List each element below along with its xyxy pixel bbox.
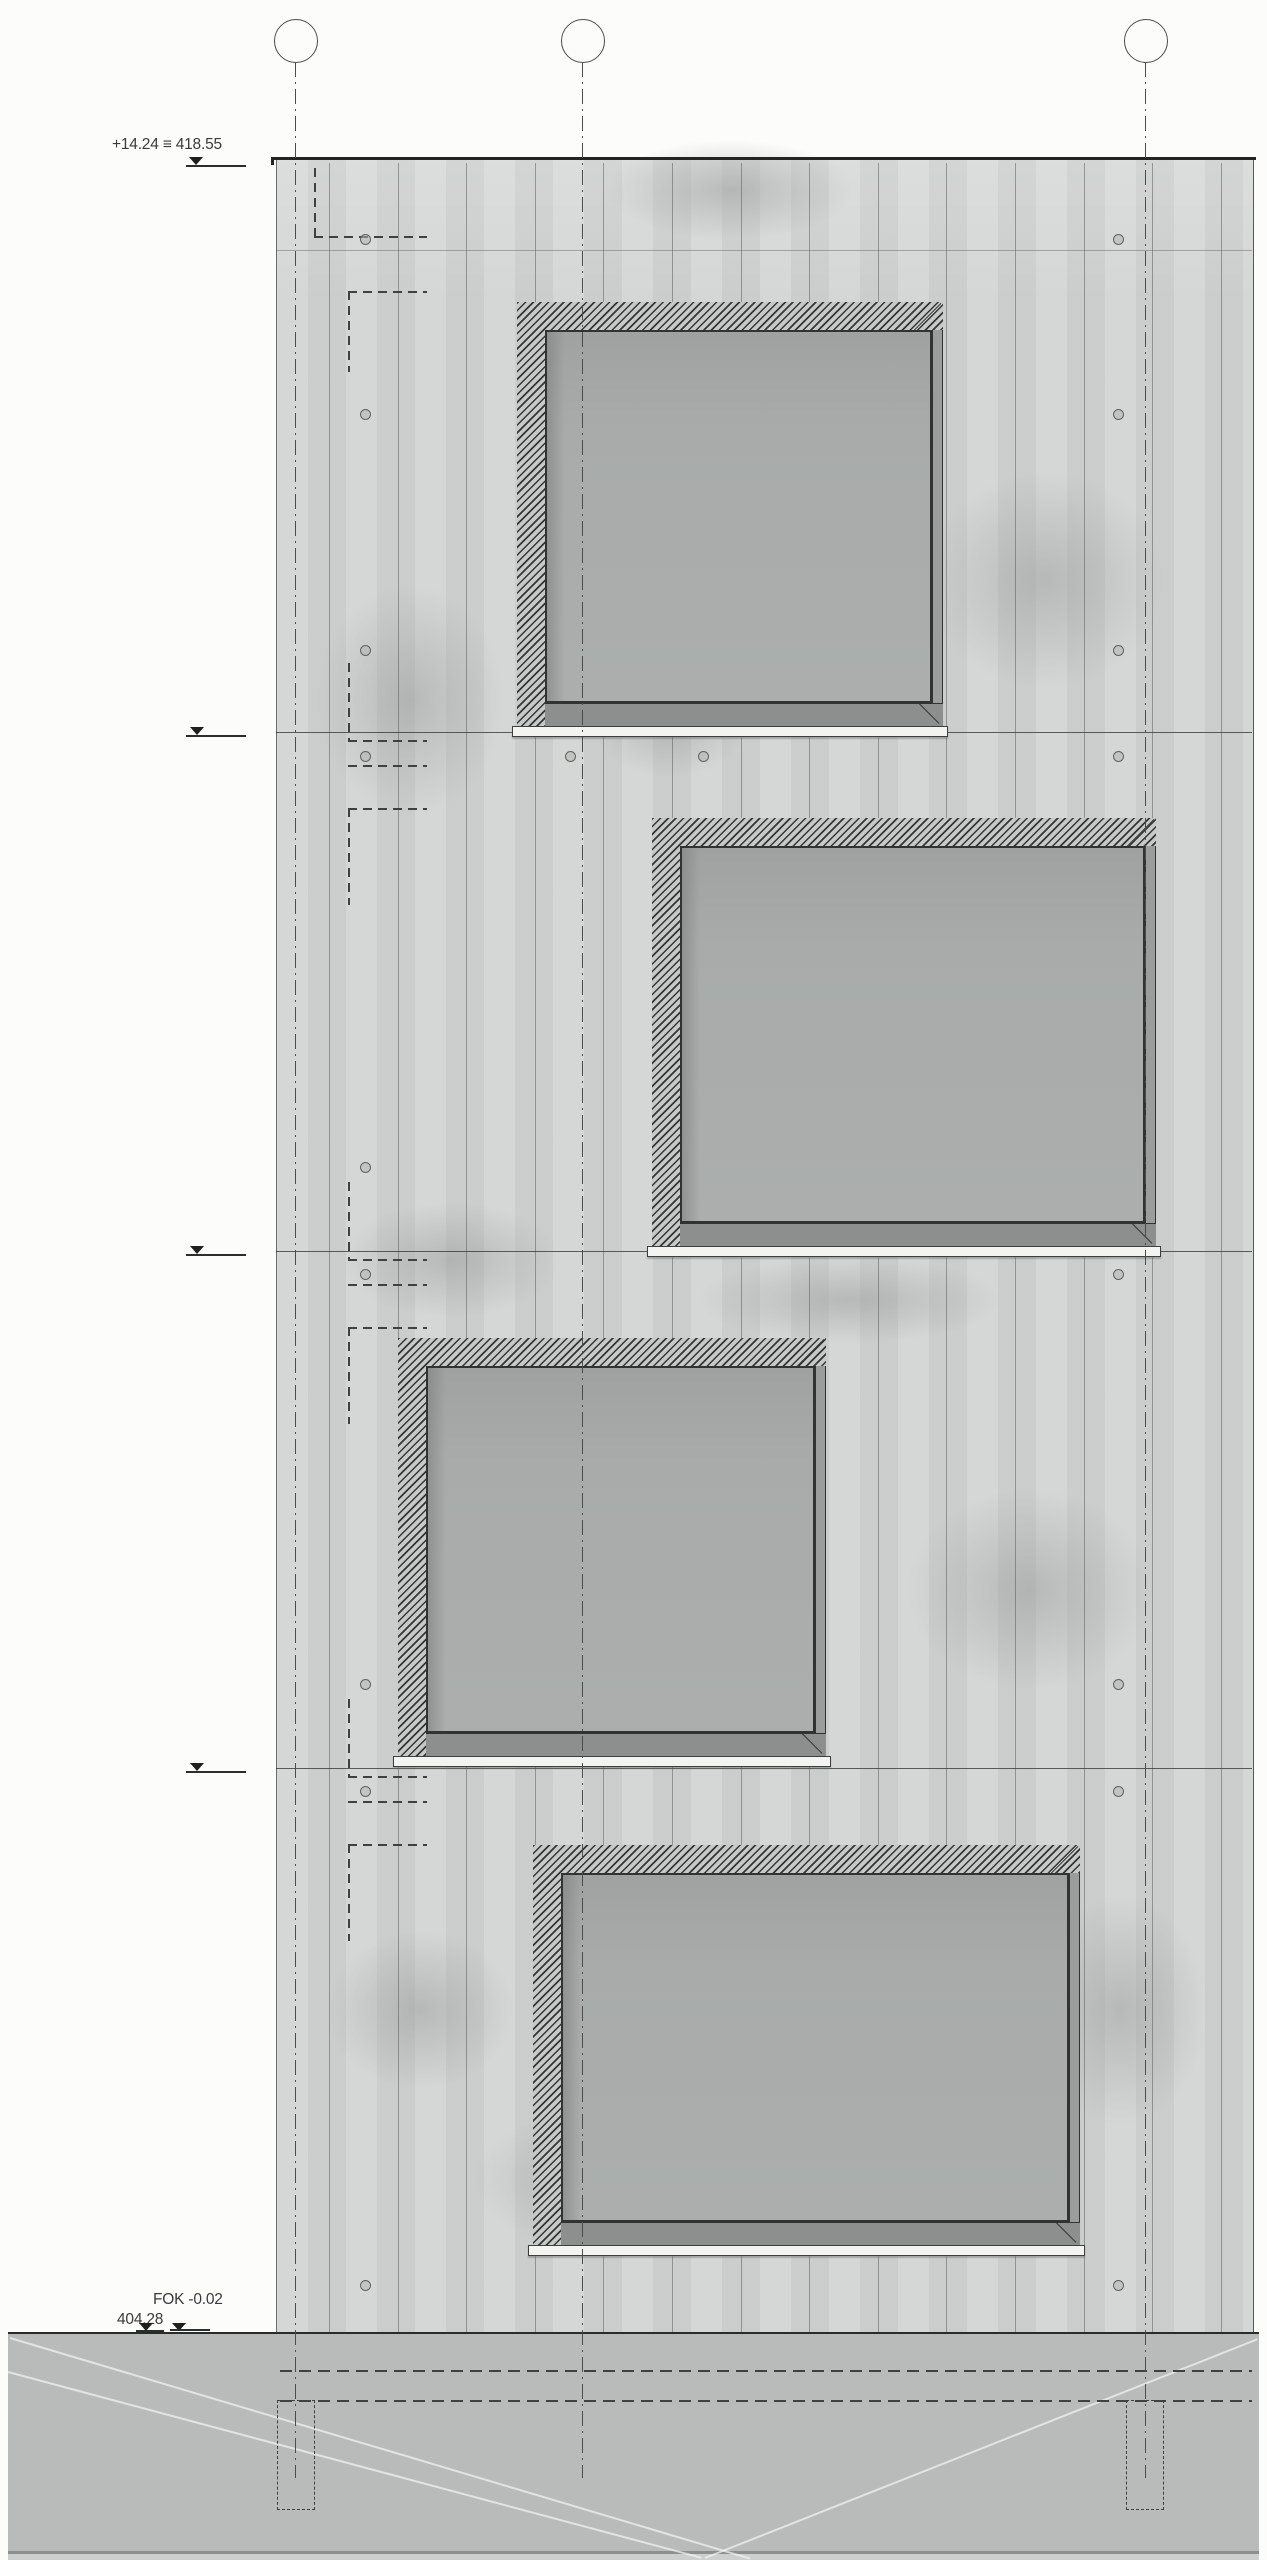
window-1-reveal	[547, 332, 565, 701]
window-1-sill-ledge	[512, 726, 948, 737]
level-marker-line	[186, 1254, 246, 1256]
hidden-dashed-line	[348, 740, 427, 742]
bottom-marker-line	[136, 2330, 164, 2332]
top-level-annotation: +14.24 ≡ 418.55	[112, 136, 222, 154]
tie-hole-dot	[1113, 1269, 1124, 1280]
board-joint-line	[466, 163, 467, 2332]
window-4-jamb-double-line	[541, 1849, 542, 2241]
hidden-dashed-line	[348, 1327, 350, 1424]
hidden-dashed-line	[348, 663, 350, 740]
tie-hole-dot	[1113, 2280, 1124, 2291]
hidden-dashed-line	[348, 1259, 427, 1261]
level-marker-line	[186, 1771, 246, 1773]
window-1-sill-band	[545, 703, 943, 726]
tie-hole-dot	[360, 409, 371, 420]
window-2-hatch-top	[652, 818, 1156, 846]
window-2-hatch-left	[652, 818, 680, 1246]
hidden-dashed-line	[348, 1182, 350, 1259]
concrete-stain	[560, 120, 900, 260]
tie-hole-dot	[360, 751, 371, 762]
hidden-dashed-line	[348, 1327, 427, 1329]
tie-hole-dot	[360, 1269, 371, 1280]
hidden-dashed-line	[348, 1844, 427, 1846]
foundation-dashed-line	[280, 2370, 1252, 2372]
window-4-reveal	[563, 1875, 581, 2220]
wall-top-tick	[271, 157, 274, 165]
ground	[8, 2332, 1259, 2554]
level-marker-icon	[190, 727, 204, 735]
window-4-hatch-left	[533, 1845, 561, 2245]
hidden-dashed-line	[348, 1844, 350, 1941]
tie-hole-dot	[360, 1786, 371, 1797]
window-4-glass	[561, 1873, 1069, 2222]
construction-joint-line	[276, 250, 1252, 251]
elevation-drawing: +14.24 ≡ 418.55 FOK -0.02 404,28	[0, 0, 1267, 2560]
window-2-jamb-double-line	[660, 822, 661, 1242]
tie-hole-dot	[1113, 751, 1124, 762]
window-2-right-jamb	[1145, 846, 1156, 1223]
window-1-hatch-left	[517, 302, 545, 726]
ground-bottom-tail	[8, 2554, 1259, 2560]
hidden-dashed-line	[314, 168, 316, 236]
tie-hole-dot	[1113, 1679, 1124, 1690]
tie-hole-dot	[698, 751, 709, 762]
board-joint-line	[1221, 163, 1222, 2332]
window-1-hatch-top	[517, 302, 943, 330]
hidden-dashed-line	[348, 1699, 350, 1776]
top-level-marker-line	[186, 165, 246, 167]
window-3-sill-band	[426, 1733, 826, 1756]
bottom-level-label: FOK -0.02	[153, 2291, 223, 2309]
grid-line-3	[1145, 62, 1146, 2478]
window-2-glass	[680, 846, 1145, 1223]
tie-hole-dot	[1113, 1786, 1124, 1797]
window-4-hatch-top	[533, 1845, 1080, 1873]
grid-line-1	[295, 62, 296, 2478]
window-2-sill-ledge	[647, 1246, 1161, 1257]
hidden-dashed-line	[348, 808, 427, 810]
hidden-dashed-line	[348, 765, 427, 767]
window-3-sill-ledge	[393, 1756, 831, 1767]
tie-hole-dot	[360, 2280, 371, 2291]
concrete-stain	[280, 540, 540, 860]
tie-hole-dot	[360, 645, 371, 656]
window-2-sill-band	[680, 1223, 1156, 1246]
tie-hole-dot	[360, 234, 371, 245]
hidden-dashed-line	[348, 291, 350, 372]
window-3-jamb-double-line	[406, 1342, 407, 1752]
concrete-stain	[860, 1450, 1200, 1730]
hidden-dashed-line	[348, 808, 350, 905]
tie-hole-dot	[565, 751, 576, 762]
window-3-glass	[426, 1366, 815, 1733]
window-3-reveal	[428, 1368, 446, 1731]
bottom-marker-line2	[170, 2329, 210, 2331]
level-marker-icon	[190, 1763, 204, 1771]
grid-bubble-1	[274, 19, 318, 63]
top-level-marker-icon	[189, 157, 203, 165]
window-3-hatch-left	[398, 1338, 426, 1756]
grid-bubble-2	[561, 19, 605, 63]
window-3-hatch-top	[398, 1338, 826, 1366]
window-1-glass	[545, 330, 932, 703]
board-joint-line	[398, 163, 399, 2332]
window-4-sill-band	[561, 2222, 1080, 2245]
foundation-dashed-line	[280, 2400, 1252, 2402]
wall-top-edge	[271, 157, 1256, 160]
window-4-sill-ledge	[528, 2245, 1085, 2256]
window-1-right-jamb	[932, 330, 943, 703]
grid-bubble-3	[1124, 19, 1168, 63]
grid-line-2	[582, 62, 583, 2478]
window-3-right-jamb	[815, 1366, 826, 1733]
level-marker-line	[186, 735, 246, 737]
hidden-dashed-line	[348, 1776, 427, 1778]
window-2-reveal	[682, 848, 700, 1221]
hidden-dashed-line	[348, 1801, 427, 1803]
tie-hole-dot	[1113, 645, 1124, 656]
level-marker-icon	[190, 1246, 204, 1254]
tie-hole-dot	[360, 1679, 371, 1690]
hidden-dashed-line	[348, 291, 427, 293]
board-joint-line	[329, 163, 330, 2332]
floor-level-line	[276, 1768, 1252, 1769]
concrete-stain	[300, 1180, 600, 1340]
window-4-right-jamb	[1069, 1873, 1080, 2222]
hidden-dashed-line	[348, 1284, 427, 1286]
tie-hole-dot	[360, 1162, 371, 1173]
tie-hole-dot	[1113, 234, 1124, 245]
tie-hole-dot	[1113, 409, 1124, 420]
